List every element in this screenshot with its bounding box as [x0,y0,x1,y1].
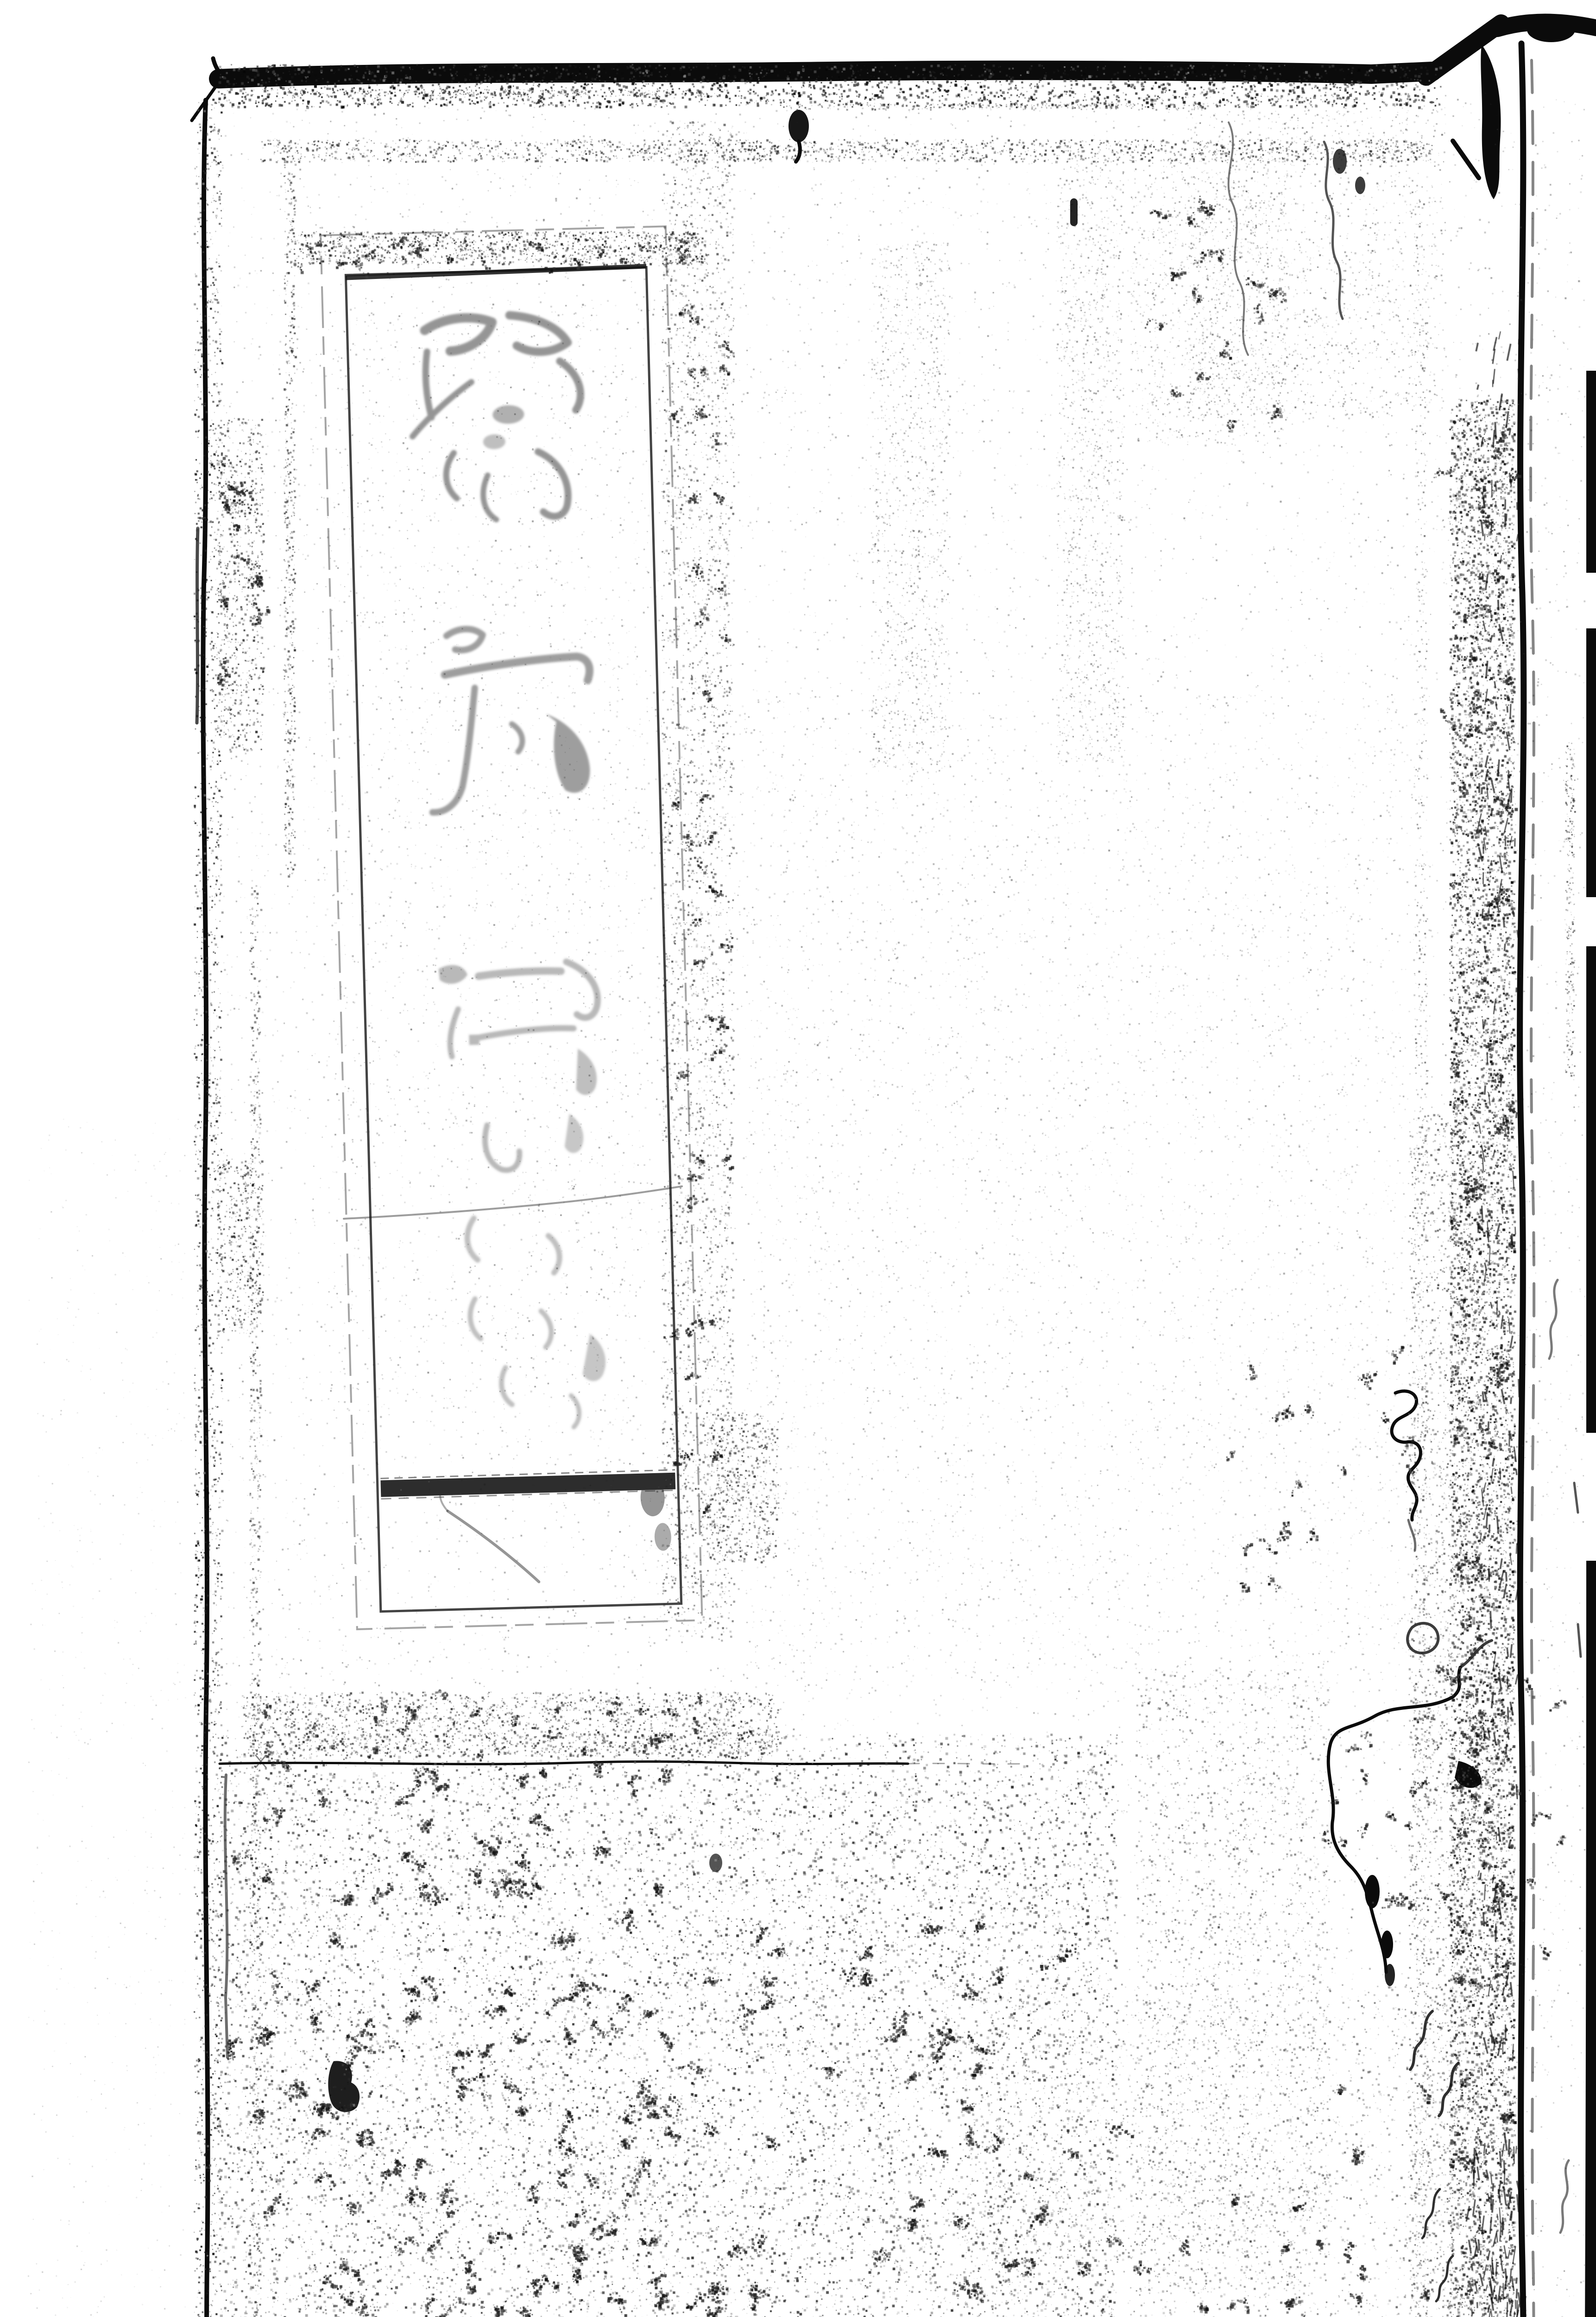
scanned-book-cover [0,0,1596,2317]
corner-notch [192,80,221,120]
label-inner-frame [346,267,681,1612]
binding-peel-curls [1410,2011,1458,2317]
title-label [319,225,704,1631]
title-character-1 [410,313,584,521]
title-character-3 [438,961,602,1172]
cover-artwork [0,0,1596,2317]
scan-noise-texture [0,0,1596,2317]
left-border [197,100,227,2317]
label-outer-frame [321,226,702,1629]
title-character-4 [467,1215,607,1430]
label-separator [380,1470,675,1499]
top-border [192,17,1596,120]
label-inner-frame-top [346,266,646,278]
right-scan-strip [1583,371,1596,2317]
binding-drip [1481,44,1501,199]
crack-marks [1229,122,1492,1986]
binding-edge [1410,44,1596,2317]
label-lower-compartment-mark [440,1479,672,1584]
title-character-2 [428,626,593,813]
